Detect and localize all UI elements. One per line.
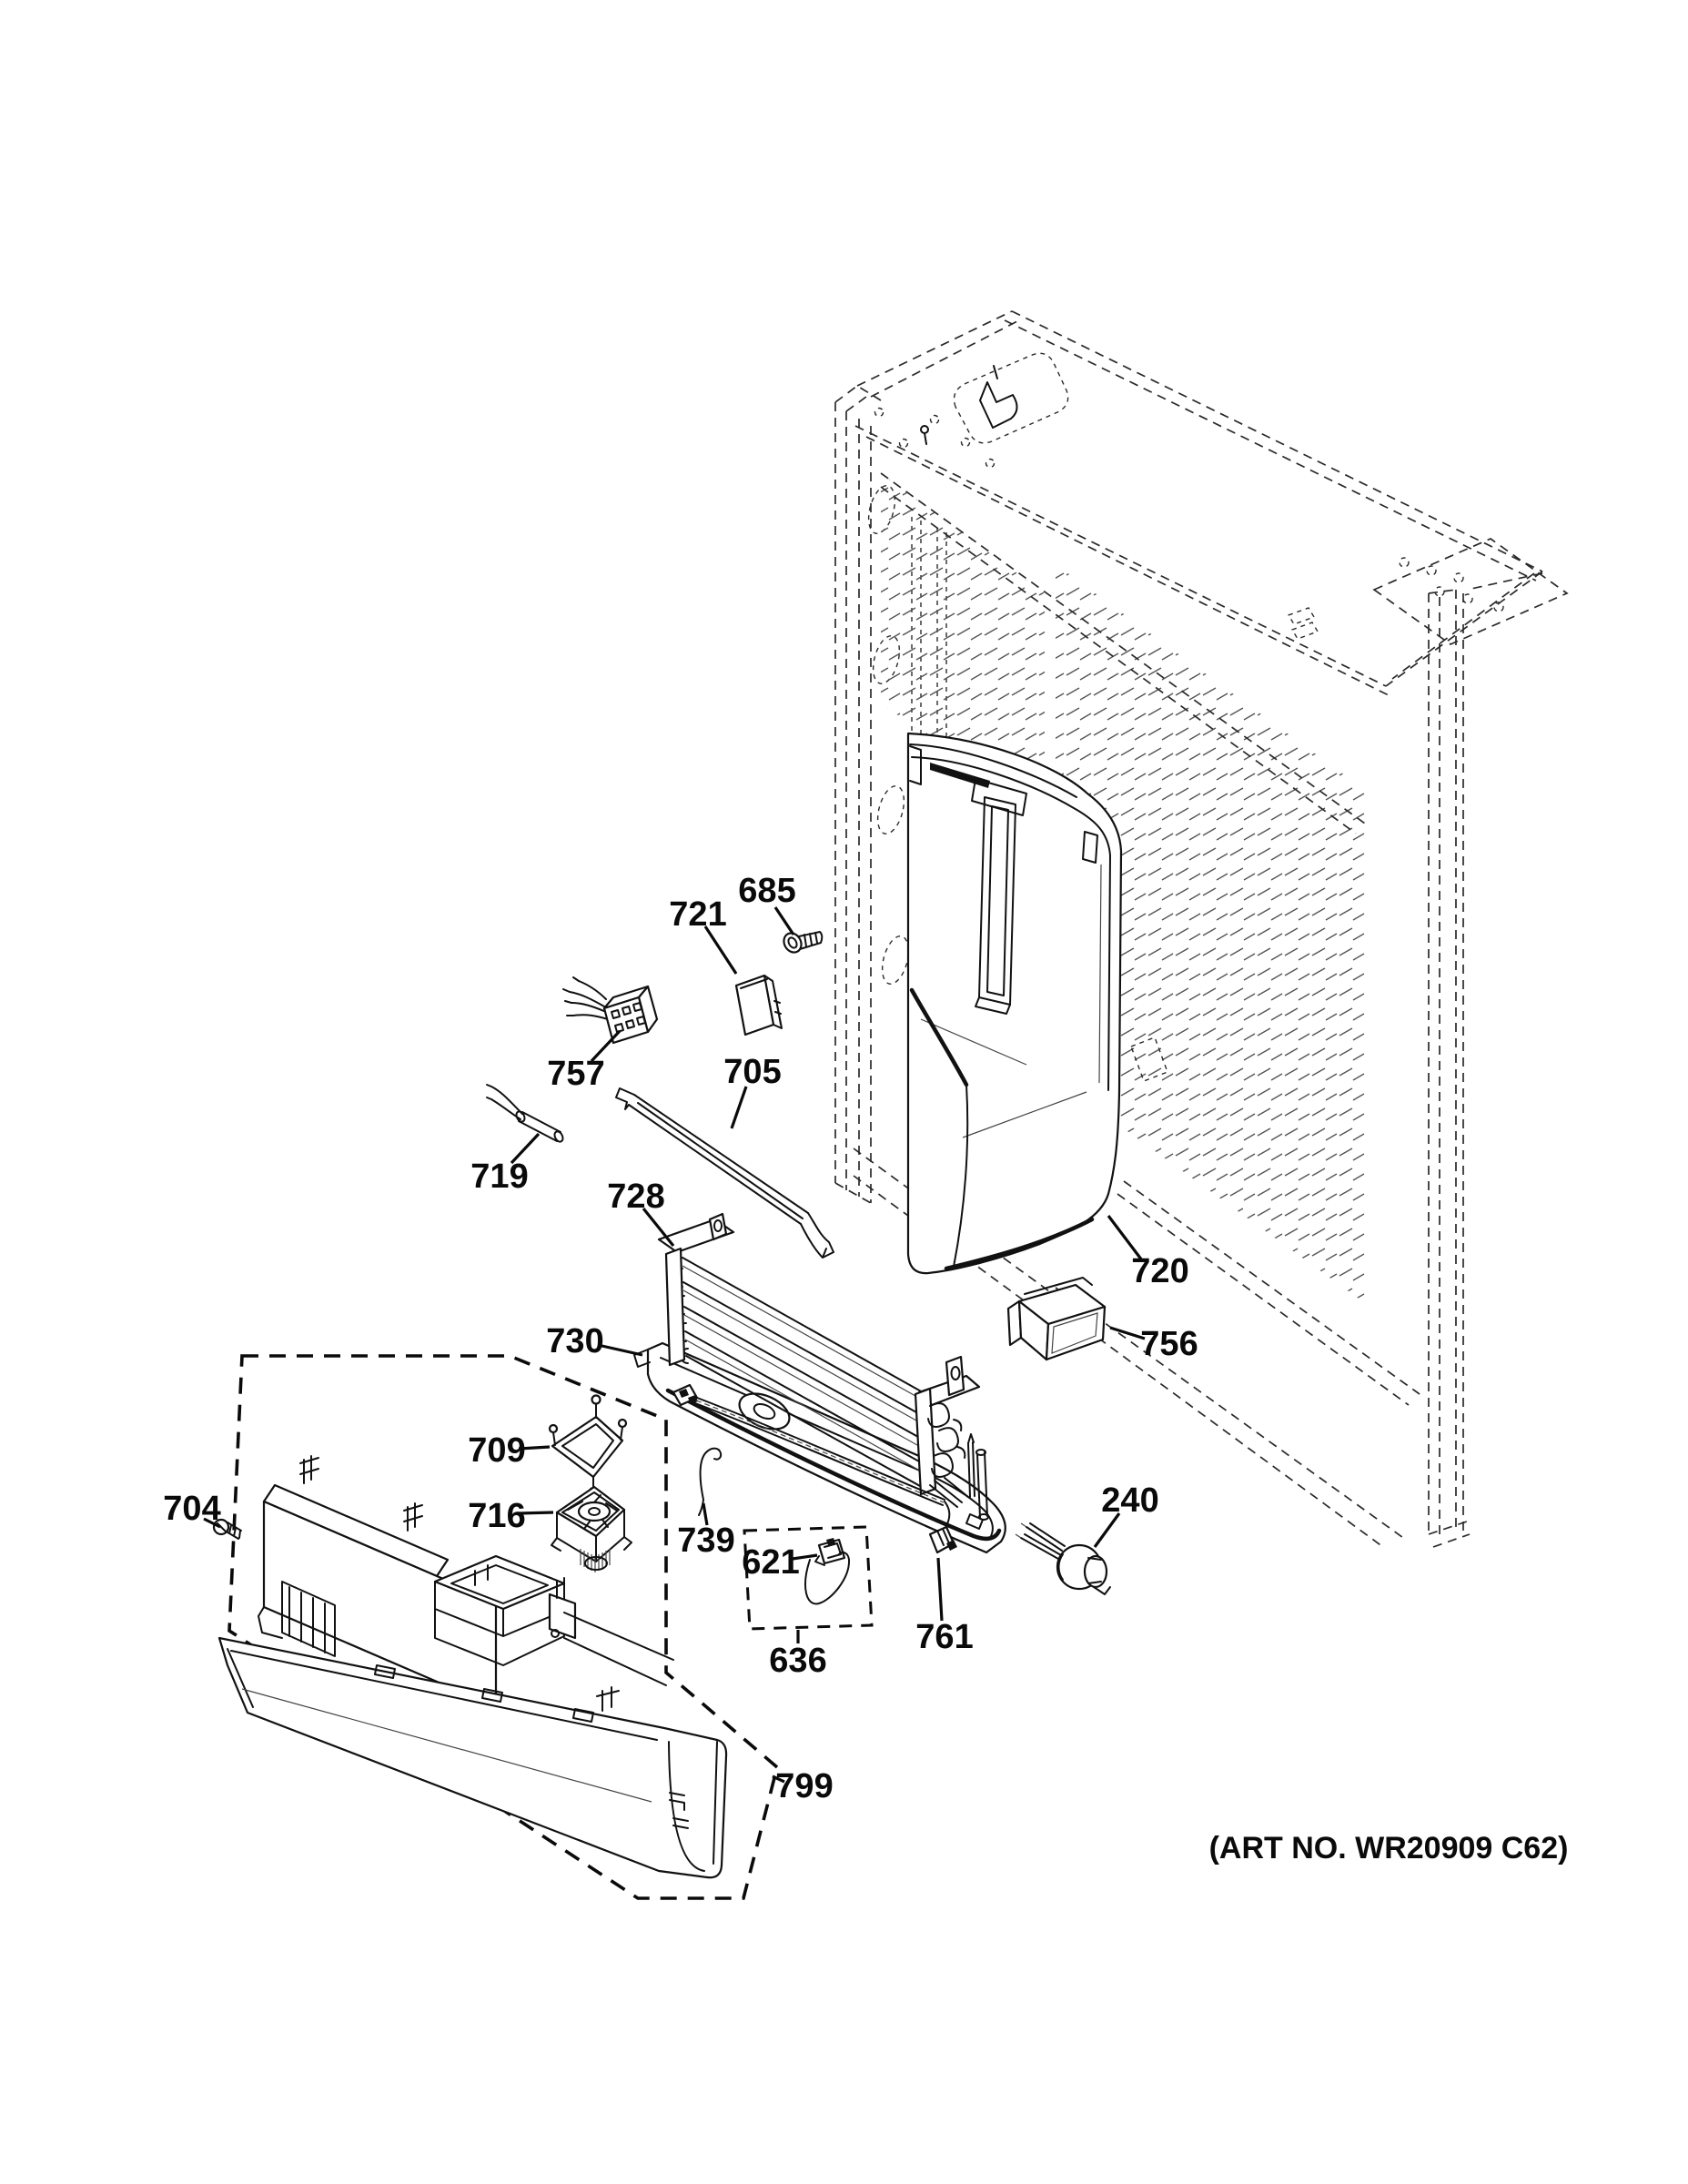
leader-line-730 bbox=[598, 1345, 642, 1355]
art-number: (ART NO. WR20909 C62) bbox=[1209, 1831, 1569, 1865]
part-label-240: 240 bbox=[1101, 1481, 1158, 1520]
duct-inlet-cover-756 bbox=[1008, 1278, 1105, 1360]
part-label-728: 728 bbox=[607, 1178, 664, 1216]
part-label-730: 730 bbox=[546, 1322, 603, 1360]
part-label-621: 621 bbox=[742, 1543, 799, 1582]
part-label-636: 636 bbox=[769, 1642, 826, 1680]
part-label-799: 799 bbox=[775, 1767, 833, 1805]
defrost-sensor-721 bbox=[736, 976, 782, 1035]
part-label-739: 739 bbox=[677, 1522, 734, 1560]
clip-621 bbox=[815, 1538, 844, 1565]
wire-clip-739 bbox=[699, 1449, 721, 1515]
part-label-709: 709 bbox=[468, 1431, 525, 1470]
leader-line-761 bbox=[938, 1558, 942, 1621]
fan-grille-709 bbox=[550, 1396, 626, 1496]
part-label-705: 705 bbox=[723, 1053, 781, 1091]
diagram-page: 6857217577057197287307097167047396216367… bbox=[0, 0, 1688, 2184]
parts-diagram-canvas: 6857217577057197287307097167047396216367… bbox=[0, 0, 1688, 2184]
part-label-719: 719 bbox=[470, 1158, 528, 1196]
evaporator-cover-720 bbox=[908, 733, 1121, 1273]
leader-line-705 bbox=[732, 1087, 746, 1128]
part-label-761: 761 bbox=[915, 1618, 973, 1656]
screw-685 bbox=[781, 930, 823, 955]
part-label-721: 721 bbox=[669, 895, 726, 934]
part-label-685: 685 bbox=[738, 872, 795, 910]
part-label-757: 757 bbox=[547, 1055, 604, 1093]
leader-line-756 bbox=[1110, 1328, 1145, 1339]
part-label-716: 716 bbox=[468, 1497, 525, 1535]
leader-line-685 bbox=[775, 907, 793, 935]
wire-harness-connector-757 bbox=[563, 977, 657, 1043]
part-label-756: 756 bbox=[1140, 1325, 1198, 1363]
tube-719 bbox=[487, 1085, 564, 1143]
evaporator-fan-716 bbox=[551, 1487, 632, 1572]
part-label-720: 720 bbox=[1131, 1252, 1188, 1290]
defrost-thermostat-240 bbox=[1016, 1523, 1110, 1594]
part-label-704: 704 bbox=[163, 1490, 220, 1528]
